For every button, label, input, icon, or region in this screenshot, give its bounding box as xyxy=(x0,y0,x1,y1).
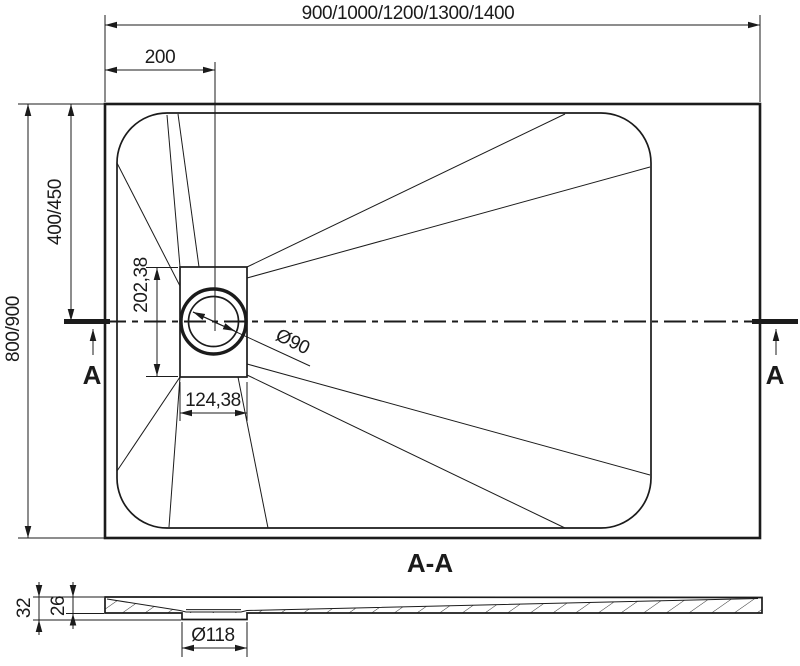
drain-hole-label: Ø118 xyxy=(191,625,234,646)
drain xyxy=(180,62,247,377)
section-label-left: A xyxy=(83,360,102,390)
dimension-drain-offset: 200 xyxy=(105,47,215,70)
total-height-label: 32 xyxy=(14,598,35,618)
section-label-right: A xyxy=(766,360,785,390)
dimension-drain-hole: Ø118 xyxy=(182,622,247,657)
technical-drawing: A A 900/1000/1200/1300/1400 200 800/900 … xyxy=(0,0,800,666)
dimension-drain-diameter: Ø90 xyxy=(193,312,313,366)
dimension-edge-height: 26 xyxy=(48,582,104,629)
edge-height-label: 26 xyxy=(48,596,69,616)
section-view: A-A 32 26 Ø118 xyxy=(14,548,762,657)
recess-width-label: 124,38 xyxy=(185,390,241,411)
dimension-drain-axis: 400/450 xyxy=(45,104,71,321)
drain-axis-label: 400/450 xyxy=(45,179,66,245)
dimension-recess-height: 202,38 xyxy=(131,257,178,376)
width-dim-label: 900/1000/1200/1300/1400 xyxy=(302,3,515,24)
drain-diameter-label: Ø90 xyxy=(272,325,312,359)
section-title: A-A xyxy=(407,548,453,578)
height-dim-label: 800/900 xyxy=(3,296,24,362)
dimension-recess-width: 124,38 xyxy=(180,382,247,421)
dimension-width: 900/1000/1200/1300/1400 xyxy=(105,3,760,102)
drawing-canvas: A A 900/1000/1200/1300/1400 200 800/900 … xyxy=(0,0,800,666)
drain-offset-label: 200 xyxy=(145,47,176,68)
plan-view: A A 900/1000/1200/1300/1400 200 800/900 … xyxy=(3,3,798,538)
recess-height-label: 202,38 xyxy=(131,257,152,313)
section-cut-line: A A xyxy=(64,322,798,391)
